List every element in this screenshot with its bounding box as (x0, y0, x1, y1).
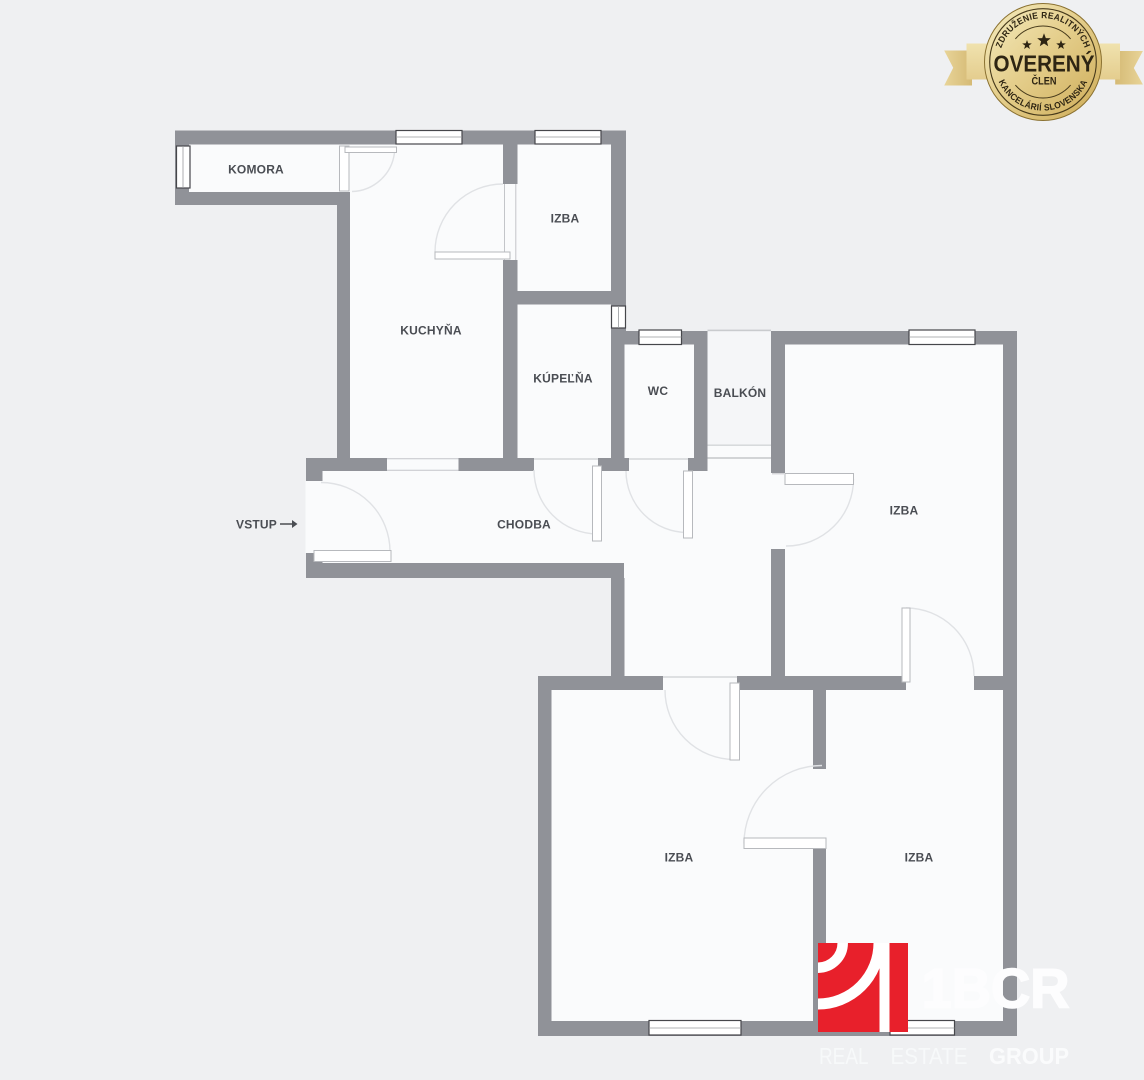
svg-text:KOMORA: KOMORA (228, 163, 284, 177)
svg-text:ESTATE: ESTATE (891, 1043, 968, 1069)
svg-text:IZBA: IZBA (551, 212, 580, 226)
svg-text:ČLEN: ČLEN (1032, 75, 1057, 88)
svg-text:REAL: REAL (819, 1043, 869, 1069)
svg-text:KUCHYŇA: KUCHYŇA (400, 323, 462, 338)
svg-text:GROUP: GROUP (989, 1043, 1069, 1069)
svg-text:IZBA: IZBA (665, 851, 694, 865)
svg-text:IZBA: IZBA (905, 851, 934, 865)
svg-text:IZBA: IZBA (890, 504, 919, 518)
svg-text:VSTUP: VSTUP (236, 518, 277, 532)
svg-text:WC: WC (648, 384, 669, 398)
svg-text:1BCR: 1BCR (922, 958, 1070, 1020)
svg-text:BALKÓN: BALKÓN (714, 385, 767, 400)
svg-text:OVERENÝ: OVERENÝ (994, 50, 1095, 77)
svg-text:CHODBA: CHODBA (497, 518, 551, 532)
svg-text:KÚPEĽŇA: KÚPEĽŇA (533, 371, 593, 386)
